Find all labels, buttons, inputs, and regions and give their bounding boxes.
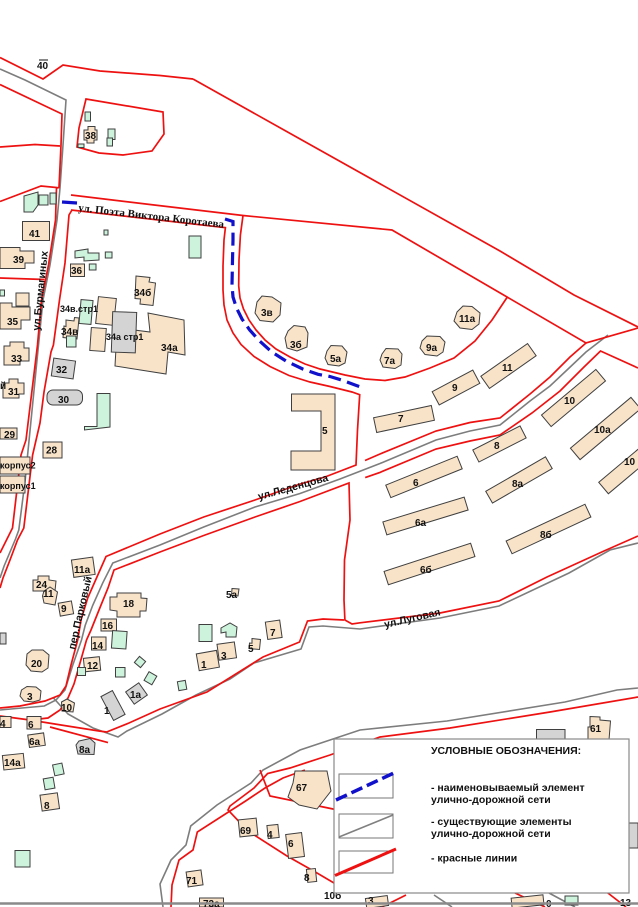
svg-text:7: 7 <box>398 414 404 425</box>
svg-text:28: 28 <box>46 446 58 457</box>
svg-text:3: 3 <box>27 692 33 703</box>
svg-text:34в: 34в <box>61 327 78 338</box>
svg-text:6: 6 <box>413 478 419 489</box>
svg-text:69: 69 <box>240 826 252 837</box>
svg-text:6б: 6б <box>420 564 432 576</box>
svg-text:6: 6 <box>288 839 294 850</box>
svg-text:20: 20 <box>31 659 43 670</box>
svg-text:11а: 11а <box>74 565 91 576</box>
svg-text:5а: 5а <box>330 354 342 365</box>
svg-text:11а: 11а <box>459 314 476 325</box>
svg-text:8б: 8б <box>540 529 552 541</box>
svg-text:8: 8 <box>494 441 500 452</box>
svg-text:16: 16 <box>102 621 114 632</box>
svg-text:32: 32 <box>56 365 68 376</box>
svg-text:41: 41 <box>29 229 41 240</box>
svg-text:1а: 1а <box>130 690 142 701</box>
svg-text:35: 35 <box>7 317 19 328</box>
svg-text:- существующие элементы: - существующие элементы <box>431 816 572 828</box>
svg-text:30: 30 <box>58 395 70 406</box>
svg-text:3в: 3в <box>261 308 273 319</box>
svg-text:5: 5 <box>248 644 254 655</box>
svg-text:11: 11 <box>502 363 513 374</box>
svg-text:61: 61 <box>590 724 602 735</box>
svg-text:40: 40 <box>37 61 49 72</box>
svg-text:9: 9 <box>61 604 67 615</box>
svg-text:7а: 7а <box>384 356 396 367</box>
svg-text:- наименовываемый элемент: - наименовываемый элемент <box>431 782 585 794</box>
svg-text:34а стр1: 34а стр1 <box>106 332 143 342</box>
svg-text:4: 4 <box>267 830 273 841</box>
svg-text:34в.стр1: 34в.стр1 <box>60 304 98 314</box>
svg-text:8: 8 <box>44 801 50 812</box>
svg-text:- красные линии: - красные линии <box>431 853 517 865</box>
svg-text:39: 39 <box>13 255 25 266</box>
svg-text:33: 33 <box>11 354 23 365</box>
svg-text:18: 18 <box>123 599 135 610</box>
svg-text:34б: 34б <box>134 287 151 299</box>
svg-text:10: 10 <box>61 703 73 714</box>
svg-text:6а: 6а <box>415 518 427 529</box>
svg-text:5а: 5а <box>226 590 238 601</box>
svg-text:8: 8 <box>304 873 310 884</box>
svg-text:29: 29 <box>4 430 16 441</box>
svg-text:й: й <box>0 381 6 392</box>
svg-text:36: 36 <box>71 266 83 277</box>
svg-text:улично-дорожной сети: улично-дорожной сети <box>431 794 551 806</box>
svg-text:3б: 3б <box>290 339 302 351</box>
svg-text:8а: 8а <box>79 745 91 756</box>
svg-text:10а: 10а <box>594 425 611 436</box>
svg-text:8а: 8а <box>512 479 524 490</box>
svg-text:11: 11 <box>43 589 54 600</box>
svg-text:10: 10 <box>564 396 576 407</box>
svg-text:4: 4 <box>0 719 6 730</box>
svg-text:10: 10 <box>624 457 636 468</box>
svg-text:14а: 14а <box>4 758 21 769</box>
svg-text:1: 1 <box>104 706 110 717</box>
svg-text:7: 7 <box>270 628 276 639</box>
svg-text:38: 38 <box>85 131 97 142</box>
svg-text:улично-дорожной сети: улично-дорожной сети <box>431 828 551 840</box>
svg-text:3: 3 <box>221 651 227 662</box>
svg-text:6: 6 <box>28 720 34 731</box>
svg-text:14: 14 <box>92 641 104 652</box>
svg-text:5: 5 <box>322 426 328 437</box>
svg-text:12: 12 <box>87 661 99 672</box>
svg-text:6а: 6а <box>29 737 41 748</box>
svg-text:корпус2: корпус2 <box>0 461 36 471</box>
svg-text:1: 1 <box>201 660 207 671</box>
svg-text:67: 67 <box>296 783 308 794</box>
svg-text:3: 3 <box>368 896 374 907</box>
svg-text:34а: 34а <box>161 343 178 354</box>
svg-text:71: 71 <box>186 876 198 887</box>
svg-text:31: 31 <box>8 387 20 398</box>
svg-text:УСЛОВНЫЕ ОБОЗНАЧЕНИЯ:: УСЛОВНЫЕ ОБОЗНАЧЕНИЯ: <box>431 745 581 757</box>
svg-text:9а: 9а <box>426 343 438 354</box>
svg-text:корпус1: корпус1 <box>0 481 36 491</box>
svg-text:9: 9 <box>452 383 458 394</box>
